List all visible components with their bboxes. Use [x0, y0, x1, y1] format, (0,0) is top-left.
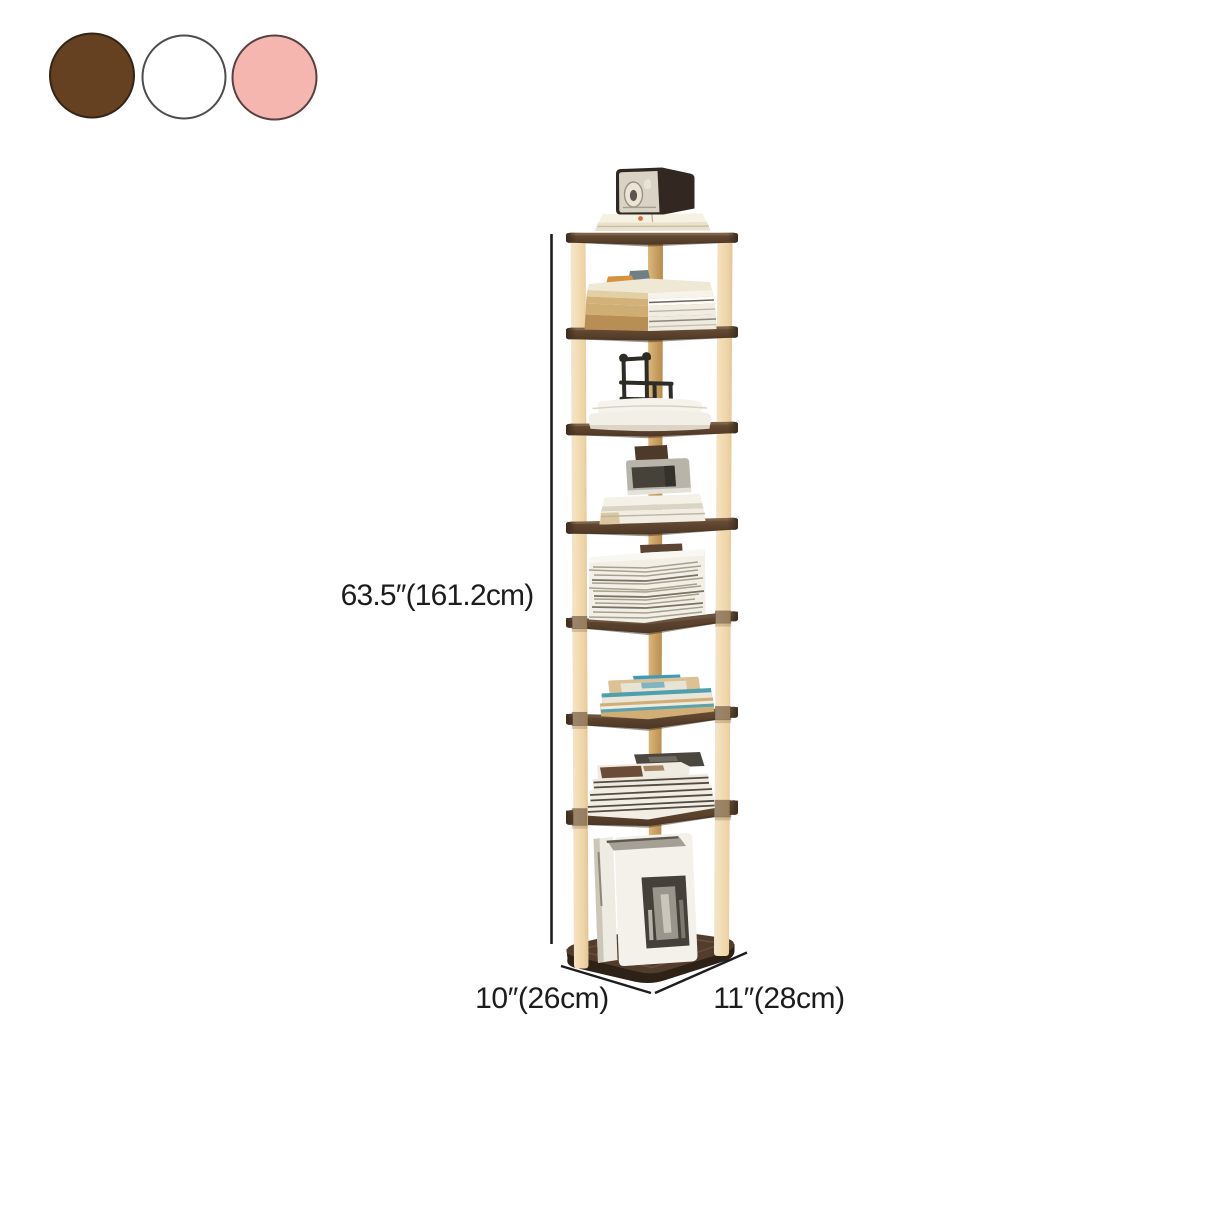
svg-text:63.5″(161.2cm): 63.5″(161.2cm) [341, 579, 534, 612]
svg-text:10″(26cm): 10″(26cm) [475, 982, 609, 1015]
svg-text:11″(28cm): 11″(28cm) [713, 982, 845, 1015]
